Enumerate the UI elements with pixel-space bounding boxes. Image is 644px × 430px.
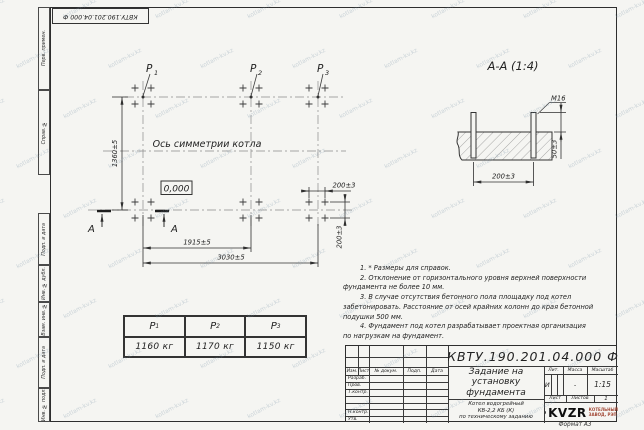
section-title: А-А (1:4) [486,59,538,73]
load-point-1 [142,96,145,99]
grid-line [346,357,448,358]
anchor-bolt-left [471,113,476,159]
dim-bolt-spacing-x: 200±3 [333,182,356,190]
p3-sub: 3 [325,69,329,77]
col-data: Дата [426,367,448,375]
p1-label: P [146,63,153,75]
symmetry-axis-label: Ось симметрии котла [153,139,262,150]
sheet-label: Лист [544,395,566,402]
mass-value: - [563,374,587,395]
grid-line [557,374,558,395]
dim-inner-width: 1915±5 [183,239,210,247]
notes: 1. * Размеры для справок. 2. Отклонение … [343,264,619,342]
elevation-value: 0,000 [164,185,190,195]
section-view: А-А (1:4) M16 50±3 200±3 [457,59,566,186]
grid-line [551,374,552,395]
kvzr-coil-icon [544,405,546,420]
dim-protrusion: 50±3 [551,140,559,159]
product-line: по техническому заданию [459,414,533,420]
kvzr-logo-text: KVZR [548,406,587,420]
section-letter-left: А [87,224,95,235]
mass-label: Масса [563,366,587,374]
dim-bolt-spacing-lines [301,187,351,226]
grid-line [346,396,448,397]
screenshot-root: { "watermark": "kotlam-kv.kz", "stamp_to… [0,0,644,430]
load-point-3 [317,96,320,99]
dim-section-spacing: 200±3 [492,173,515,181]
section-letter-right: А [170,224,178,235]
thread-label: M16 [551,95,566,103]
note-line-1: 1. * Размеры для справок. [343,264,619,274]
dim-bolt-spacing-y: 200±3 [336,226,344,249]
title-line: установку [472,377,521,388]
sheets-value: 1 [594,395,618,402]
load-table-value-p3: 1150 кг [245,337,306,358]
axis-lines [88,81,352,227]
scale-label: Масштаб [587,366,618,374]
p2-sub: 2 [258,69,262,77]
note-line-3b: забетонировать. Расстояние от осей крайн… [343,303,619,313]
row-tkontr: Т.контр. [346,389,371,396]
plan-view: P 1 P 2 P 3 Ось симметрии котла 0,000 13… [87,63,356,267]
load-table: P1 P2 P3 1160 кг 1170 кг 1150 кг [123,315,307,358]
load-point-2 [250,96,253,99]
load-table-header-p3: P3 [245,316,306,337]
title-line: Задание на [469,367,524,378]
section-cut-marks: А А [87,211,178,235]
doc-number: КВТУ.190.201.04.000 Ф [448,346,618,366]
load-table-value-p2: 1170 кг [185,337,246,358]
dim-total-width: 3030±5 [217,254,244,262]
title-block: Изм. Лист № докум. Подп. Дата Разраб. Пр… [345,345,617,422]
dim-height: 1360±5 [111,140,119,167]
row-razrab: Разраб. [346,375,371,382]
note-line-4b: по нагрузкам на фундамент. [343,332,619,342]
note-line-2b: фундамента не более 10 мм. [343,283,619,293]
col-dokum: № докум. [369,367,403,375]
company-logo: KVZR КОТЕЛЬНЫЙ ЗАВОД, РЭП [544,402,618,423]
row-prov: Пров. [346,382,371,389]
lit-value: И [544,374,551,395]
grid-line [346,403,448,404]
col-izm: Изм. [346,367,358,375]
load-table-header-p1: P1 [124,316,185,337]
p-sub: 2 [216,323,220,330]
row-utv: Утв. [346,416,371,423]
product-name: Котел водогрейный КВ-2,2 КБ (К) по техни… [448,399,544,423]
title-line: фундамента [466,388,526,399]
row-nkontr: Н.контр. [346,409,371,416]
load-table-header-p2: P2 [185,316,246,337]
format-label: Формат А3 [545,422,605,428]
col-podp: Подп. [403,367,426,375]
p1-sub: 1 [154,69,158,77]
scale-value: 1:15 [587,374,618,395]
load-table-value-p1: 1160 кг [124,337,185,358]
drawing-title: Задание на установку фундамента [448,366,544,399]
p2-label: P [250,63,257,75]
note-line-2: 2. Отклонение от горизонтального уровня … [343,274,619,284]
caption-line: ЗАВОД, РЭП [589,413,618,418]
sheets-label: Листов [566,395,594,402]
p-sub: 3 [277,323,281,330]
kvzr-logo-caption: КОТЕЛЬНЫЙ ЗАВОД, РЭП [589,408,618,418]
p-sub: 1 [155,323,159,330]
note-line-3c: подушки 500 мм. [343,313,619,323]
col-list: Лист [358,367,369,375]
load-point-leaders [143,74,323,96]
note-line-4: 4. Фундамент под котел разрабатывает про… [343,322,619,332]
lit-label: Лит. [544,366,563,374]
p3-label: P [317,63,324,75]
anchor-bolt-right [531,113,536,159]
note-line-3: 3. В случае отсутствия бетонного пола пл… [343,293,619,303]
anchor-bolt-marks [132,85,329,222]
